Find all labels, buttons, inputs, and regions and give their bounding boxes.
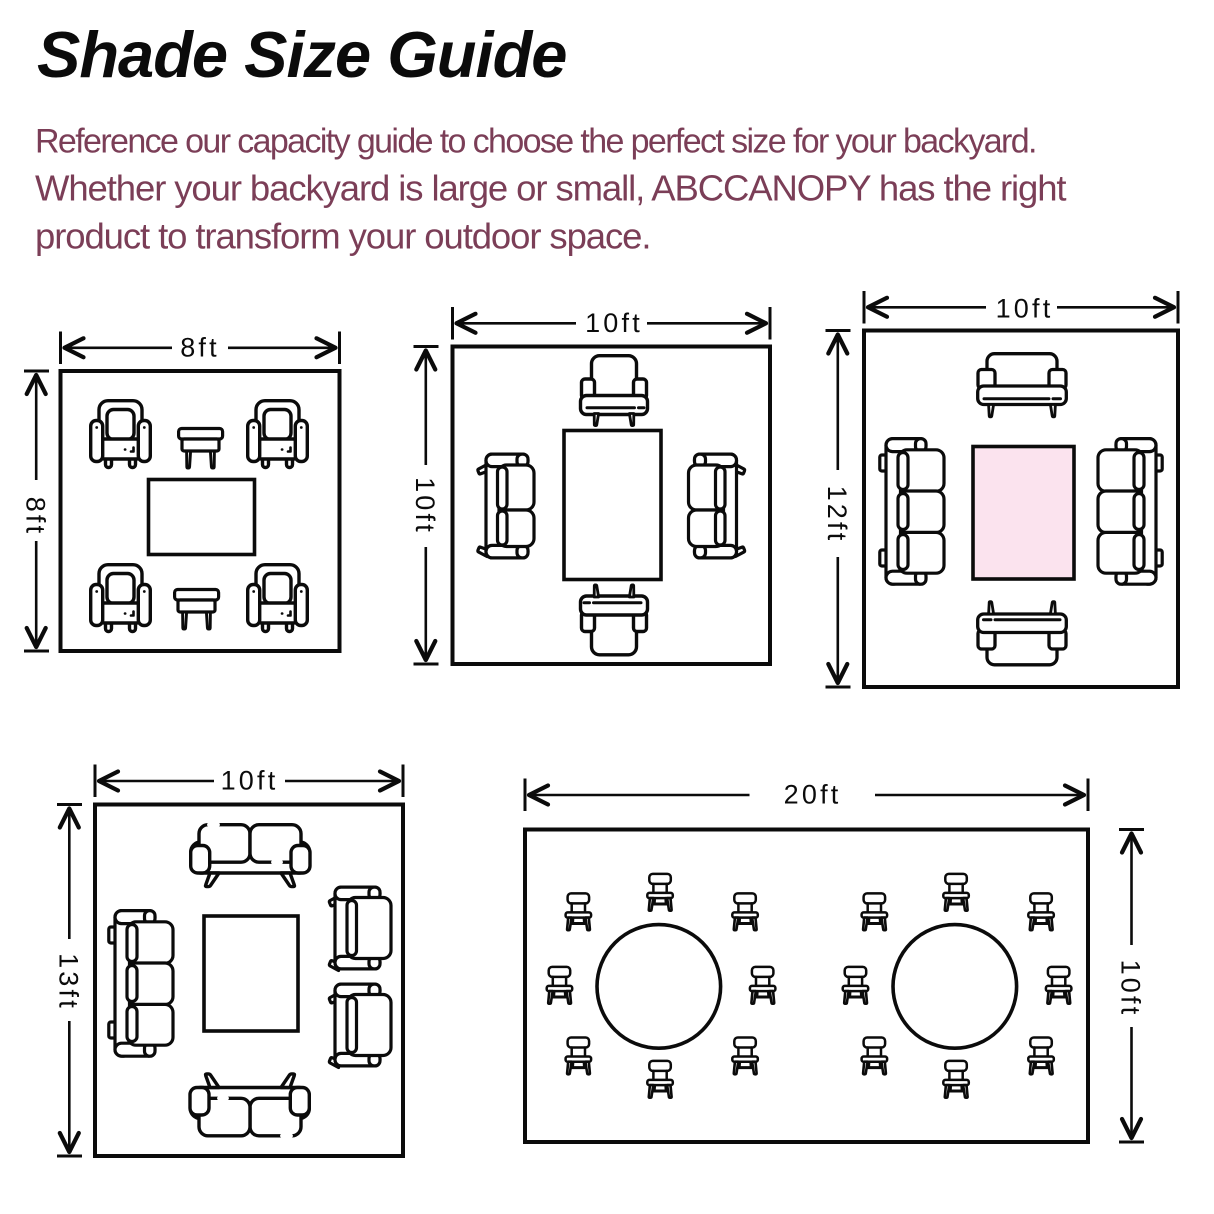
svg-text:12ft: 12ft [822, 486, 852, 544]
svg-text:10ft: 10ft [221, 766, 279, 796]
svg-text:8ft: 8ft [180, 333, 220, 363]
svg-text:product to transform your outd: product to transform your outdoor space. [35, 216, 650, 257]
svg-text:10ft: 10ft [585, 308, 643, 338]
svg-text:Shade Size Guide: Shade Size Guide [37, 18, 566, 91]
svg-text:10ft: 10ft [996, 293, 1054, 323]
svg-text:20ft: 20ft [784, 780, 842, 810]
svg-text:Whether your backyard is large: Whether your backyard is large or small,… [35, 168, 1066, 209]
svg-text:13ft: 13ft [54, 953, 84, 1011]
svg-text:8ft: 8ft [21, 497, 51, 537]
svg-text:10ft: 10ft [1116, 960, 1146, 1018]
svg-text:10ft: 10ft [410, 477, 440, 535]
svg-text:Reference our capacity guide t: Reference our capacity guide to choose t… [35, 123, 1036, 161]
